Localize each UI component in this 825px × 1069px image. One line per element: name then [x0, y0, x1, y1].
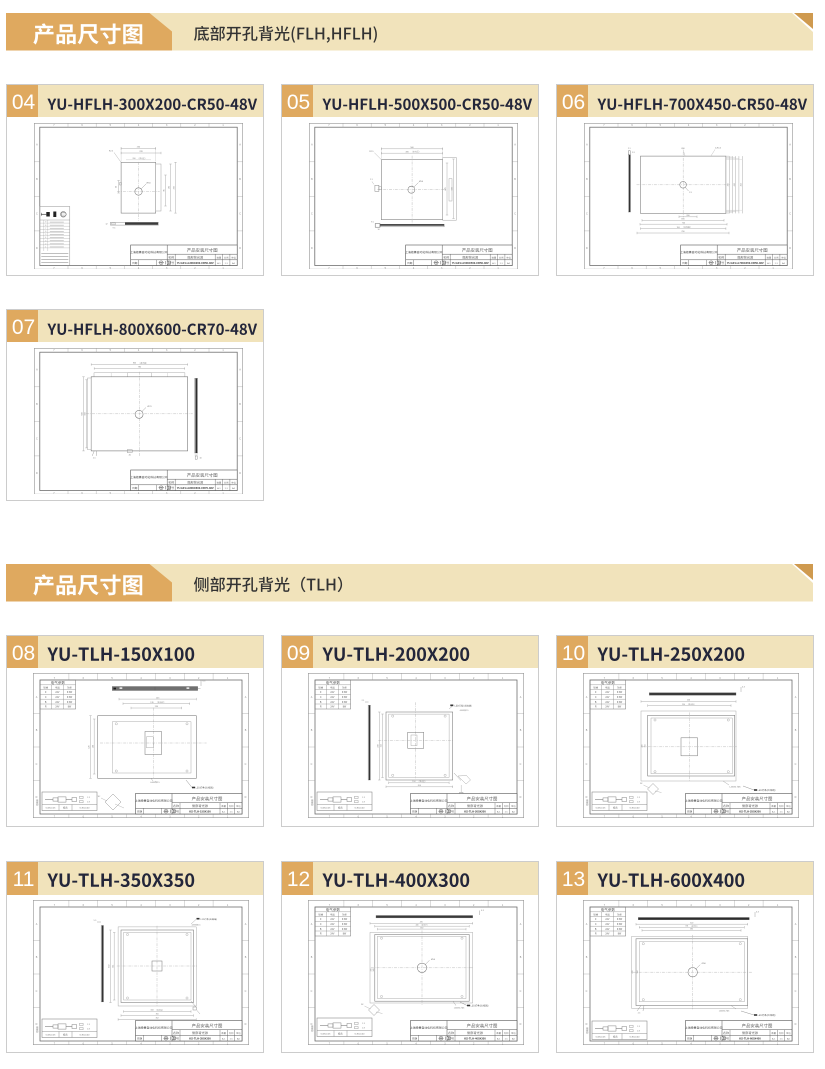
svg-text:100: 100	[92, 745, 94, 748]
svg-text:C: C	[586, 763, 588, 766]
svg-text:D: D	[795, 1023, 797, 1026]
svg-text:6.5W: 6.5W	[617, 928, 623, 930]
svg-text:2.8: 2.8	[637, 802, 640, 804]
svg-text:C: C	[245, 989, 247, 992]
svg-text:2.8: 2.8	[362, 802, 365, 804]
svg-text:2.1: 2.1	[362, 700, 365, 702]
svg-text:08: 08	[11, 642, 34, 665]
svg-text:36: 36	[116, 186, 118, 188]
svg-text:1.3: 1.3	[87, 797, 90, 799]
svg-text:9: 9	[45, 221, 46, 223]
svg-text:1: 1	[45, 246, 46, 248]
svg-text:D: D	[239, 247, 241, 250]
svg-text:6.35±0.40: 6.35±0.40	[630, 808, 640, 810]
svg-text:C: C	[311, 763, 313, 766]
svg-text:5.08±0.25: 5.08±0.25	[596, 1036, 606, 1038]
svg-text:6: 6	[45, 231, 46, 233]
svg-text:5.08±0.25: 5.08±0.25	[321, 808, 331, 810]
svg-text:2.8: 2.8	[637, 1030, 640, 1032]
svg-text:24V: 24V	[605, 919, 610, 921]
svg-text:1.3: 1.3	[362, 1022, 365, 1024]
svg-text:C: C	[36, 989, 38, 992]
svg-text:24V: 24V	[330, 692, 335, 694]
svg-text:2.8: 2.8	[87, 1028, 90, 1030]
svg-text:6.5W: 6.5W	[342, 697, 348, 699]
svg-text:200: 200	[642, 745, 644, 748]
svg-text:KS-TLH-600X400: KS-TLH-600X400	[739, 1036, 761, 1040]
svg-text:7: 7	[45, 228, 46, 230]
svg-text:740: 740	[682, 222, 685, 224]
svg-text:8: 8	[45, 224, 46, 226]
svg-text:760: 760	[682, 231, 685, 233]
svg-text:9.5: 9.5	[632, 152, 635, 154]
svg-text:2.8: 2.8	[362, 1027, 365, 1029]
svg-text:2.8: 2.8	[87, 802, 90, 804]
svg-text:139: 139	[150, 702, 153, 704]
svg-text:D: D	[239, 472, 241, 475]
svg-text:D: D	[520, 796, 522, 799]
svg-text:2.1: 2.1	[370, 179, 373, 181]
svg-text:C: C	[586, 989, 588, 992]
svg-text:C: C	[239, 437, 241, 440]
svg-text:1.3: 1.3	[637, 1025, 640, 1027]
svg-text:700: 700	[677, 226, 680, 228]
svg-text:C: C	[789, 212, 791, 215]
svg-text:KS-TLH-150X100: KS-TLH-150X100	[189, 810, 211, 814]
svg-text:24V: 24V	[55, 702, 60, 704]
svg-text:24V: 24V	[330, 697, 335, 699]
svg-text:394: 394	[637, 970, 639, 973]
svg-text:D: D	[245, 1023, 247, 1026]
svg-text:KS-TLH-200X200: KS-TLH-200X200	[464, 810, 486, 814]
svg-text:24V: 24V	[605, 928, 610, 930]
svg-text:194: 194	[412, 781, 415, 783]
svg-text:D: D	[586, 1023, 588, 1026]
svg-text:6.35±0.40: 6.35±0.40	[80, 1034, 90, 1036]
svg-text:C: C	[795, 763, 797, 766]
svg-text:250: 250	[682, 704, 685, 706]
svg-text:05: 05	[286, 91, 309, 114]
svg-text:D: D	[789, 247, 791, 250]
svg-text:KS-TLH-400X300: KS-TLH-400X300	[464, 1036, 486, 1040]
svg-text:24V: 24V	[605, 924, 610, 926]
svg-text:426: 426	[734, 183, 736, 186]
svg-text:D: D	[36, 796, 38, 799]
svg-text:D: D	[311, 796, 313, 799]
svg-text:490: 490	[406, 151, 409, 153]
svg-text:352: 352	[156, 1017, 159, 1019]
svg-text:10: 10	[561, 642, 584, 665]
svg-text:9.5: 9.5	[371, 221, 374, 223]
svg-text:9.5: 9.5	[113, 227, 116, 229]
svg-text:C: C	[514, 212, 516, 215]
svg-text:30°: 30°	[361, 1004, 364, 1006]
svg-text:6.3: 6.3	[756, 911, 759, 913]
svg-text:D: D	[36, 1023, 38, 1026]
svg-text:780: 780	[138, 366, 141, 368]
svg-text:390: 390	[420, 927, 423, 929]
svg-text:D: D	[36, 247, 38, 250]
svg-text:24V: 24V	[605, 702, 610, 704]
svg-text:24V: 24V	[330, 707, 335, 709]
svg-text:5.08±0.25: 5.08±0.25	[596, 808, 606, 810]
svg-text:D: D	[311, 247, 313, 250]
svg-text:24V: 24V	[605, 933, 610, 935]
svg-text:KS-TLH-350X350: KS-TLH-350X350	[189, 1036, 211, 1040]
svg-text:12: 12	[286, 868, 309, 891]
svg-text:256: 256	[687, 700, 690, 702]
svg-text:344: 344	[151, 1009, 154, 1011]
svg-text:6.5W: 6.5W	[617, 919, 623, 921]
svg-text:24V: 24V	[605, 707, 610, 709]
svg-text:6.5W: 6.5W	[617, 924, 623, 926]
svg-text:400: 400	[632, 970, 634, 973]
svg-text:2.5: 2.5	[638, 1012, 641, 1014]
svg-text:476: 476	[445, 187, 447, 190]
svg-text:C: C	[36, 763, 38, 766]
svg-text:690: 690	[682, 218, 685, 220]
svg-text:YU-HFLH-700X450-CR50-48V: YU-HFLH-700X450-CR50-48V	[727, 261, 764, 265]
svg-text:D: D	[245, 796, 247, 799]
svg-text:1.3: 1.3	[362, 797, 365, 799]
svg-text:24V: 24V	[330, 919, 335, 921]
svg-text:09: 09	[286, 642, 309, 665]
svg-text:24V: 24V	[330, 702, 335, 704]
svg-text:24V: 24V	[55, 707, 60, 709]
svg-text:D: D	[514, 247, 516, 250]
svg-text:6.5W: 6.5W	[342, 919, 348, 921]
svg-text:D: D	[586, 247, 588, 250]
svg-text:C: C	[245, 763, 247, 766]
svg-text:5.08±0.25: 5.08±0.25	[46, 1034, 56, 1036]
svg-text:6.5W: 6.5W	[617, 692, 623, 694]
svg-text:6.3: 6.3	[203, 681, 206, 683]
svg-text:200: 200	[133, 158, 136, 160]
svg-text:40: 40	[129, 454, 131, 456]
svg-text:450: 450	[728, 183, 730, 186]
svg-text:C: C	[520, 989, 522, 992]
svg-text:440: 440	[416, 924, 419, 926]
svg-text:24V: 24V	[605, 697, 610, 699]
svg-text:C: C	[36, 437, 38, 440]
svg-text:YU-HFLH-500X500-CR50-48V: YU-HFLH-500X500-CR50-48V	[452, 261, 489, 265]
svg-text:C: C	[520, 763, 522, 766]
svg-text:6.5W: 6.5W	[67, 702, 73, 704]
svg-text:24V: 24V	[330, 924, 335, 926]
svg-text:200: 200	[378, 744, 380, 747]
svg-text:D: D	[795, 796, 797, 799]
svg-text:194: 194	[645, 745, 647, 748]
svg-text:C: C	[311, 989, 313, 992]
svg-text:5.08±0.25: 5.08±0.25	[46, 808, 56, 810]
svg-text:6.35±0.40: 6.35±0.40	[80, 808, 90, 810]
svg-text:C: C	[311, 212, 313, 215]
svg-text:10: 10	[200, 457, 202, 459]
svg-text:C: C	[239, 212, 241, 215]
svg-text:11: 11	[12, 868, 34, 891]
svg-text:30°: 30°	[98, 796, 101, 798]
svg-text:6.35±0.40: 6.35±0.40	[630, 1036, 640, 1038]
svg-text:06: 06	[561, 91, 584, 114]
svg-text:350: 350	[109, 964, 111, 967]
svg-text:24V: 24V	[55, 697, 60, 699]
svg-text:YU-HFLH-300X200-CR50-48V: YU-HFLH-300X200-CR50-48V	[177, 261, 214, 265]
svg-text:6.35±0.40: 6.35±0.40	[355, 1033, 365, 1035]
svg-text:24V: 24V	[55, 692, 60, 694]
svg-text:1.3: 1.3	[637, 797, 640, 799]
svg-text:6.5W: 6.5W	[67, 692, 73, 694]
svg-text:6.3: 6.3	[742, 687, 745, 689]
svg-text:6.3: 6.3	[481, 910, 484, 912]
svg-text:12: 12	[106, 223, 108, 225]
svg-text:24V: 24V	[330, 928, 335, 930]
svg-text:194: 194	[381, 744, 383, 747]
svg-text:6.5W: 6.5W	[617, 697, 623, 699]
svg-text:C: C	[795, 989, 797, 992]
svg-text:195: 195	[169, 186, 171, 189]
svg-text:5.5: 5.5	[94, 920, 97, 922]
svg-text:6.5W: 6.5W	[617, 702, 623, 704]
svg-text:D: D	[36, 472, 38, 475]
svg-text:350: 350	[156, 1013, 159, 1015]
svg-text:344: 344	[112, 964, 114, 967]
svg-text:24V: 24V	[330, 933, 335, 935]
svg-text:580: 580	[690, 928, 693, 930]
svg-text:340: 340	[373, 968, 375, 971]
svg-text:260: 260	[687, 215, 690, 217]
svg-text:10: 10	[378, 229, 380, 231]
svg-text:24V: 24V	[605, 692, 610, 694]
svg-text:800: 800	[133, 362, 136, 364]
svg-text:6.5W: 6.5W	[342, 692, 348, 694]
svg-text:6.35±0.40: 6.35±0.40	[355, 808, 365, 810]
svg-text:6.5W: 6.5W	[342, 924, 348, 926]
svg-text:C: C	[586, 212, 588, 215]
svg-text:96: 96	[164, 189, 166, 191]
svg-text:500: 500	[452, 187, 454, 190]
svg-text:04: 04	[11, 91, 35, 114]
svg-text:C: C	[36, 212, 38, 215]
svg-text:07: 07	[11, 316, 34, 339]
svg-text:6.5W: 6.5W	[67, 697, 73, 699]
svg-text:YU-HFLH-800X600-CR70-48V: YU-HFLH-800X600-CR70-48V	[177, 486, 214, 490]
svg-text:1.3: 1.3	[87, 1023, 90, 1025]
svg-text:13: 13	[561, 868, 584, 891]
svg-text:5: 5	[45, 234, 46, 236]
svg-text:2-R4.5: 2-R4.5	[715, 147, 722, 149]
svg-text:600: 600	[690, 922, 693, 924]
svg-text:594: 594	[685, 925, 688, 927]
svg-text:2.1: 2.1	[628, 147, 631, 149]
svg-text:435: 435	[420, 921, 423, 923]
svg-text:KS-TLH-250X200: KS-TLH-250X200	[739, 810, 761, 814]
svg-text:5.08±0.25: 5.08±0.25	[321, 1033, 331, 1035]
svg-text:404: 404	[741, 183, 743, 186]
svg-text:200: 200	[174, 186, 176, 189]
svg-text:2.5: 2.5	[93, 457, 96, 459]
svg-text:D: D	[586, 796, 588, 799]
svg-text:2: 2	[45, 243, 46, 245]
svg-text:4: 4	[45, 237, 46, 239]
svg-text:D: D	[520, 1023, 522, 1026]
svg-text:6.5W: 6.5W	[342, 702, 348, 704]
svg-text:200: 200	[418, 785, 421, 787]
svg-text:600: 600	[82, 412, 84, 415]
svg-text:30°: 30°	[640, 783, 643, 785]
svg-text:6.5W: 6.5W	[342, 928, 348, 930]
svg-text:3: 3	[45, 240, 46, 242]
svg-text:560: 560	[85, 412, 87, 415]
